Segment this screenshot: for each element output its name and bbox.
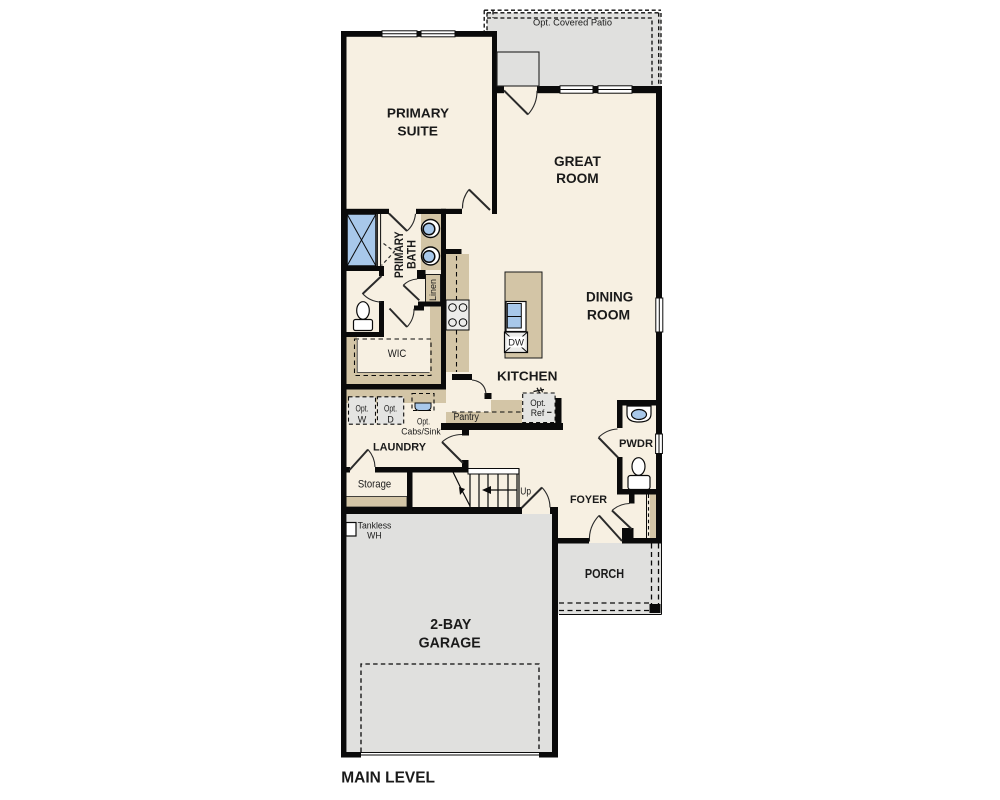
svg-text:GREAT: GREAT [554,154,602,169]
svg-text:W: W [358,414,367,424]
svg-text:PRIMARY: PRIMARY [387,106,450,121]
svg-text:ROOM: ROOM [587,307,630,322]
svg-text:2-BAY: 2-BAY [430,617,471,633]
svg-text:ROOM: ROOM [556,171,599,186]
svg-text:WH: WH [367,530,382,540]
svg-text:Opt.: Opt. [530,398,546,409]
svg-text:DINING: DINING [586,290,633,305]
svg-text:Opt.: Opt. [417,417,430,427]
svg-text:KITCHEN: KITCHEN [497,370,557,384]
svg-text:Storage: Storage [358,479,391,491]
svg-text:SUITE: SUITE [397,123,438,138]
svg-text:DW: DW [508,338,524,349]
svg-text:Up: Up [520,487,531,498]
svg-text:Cabs/Sink: Cabs/Sink [401,426,441,436]
svg-text:GARAGE: GARAGE [419,636,481,652]
svg-text:PORCH: PORCH [585,567,624,581]
svg-text:BATH: BATH [407,240,419,269]
svg-text:D: D [387,414,394,424]
svg-text:Pantry: Pantry [454,412,479,423]
svg-text:PWDR: PWDR [619,438,653,450]
svg-text:FOYER: FOYER [570,494,607,506]
svg-text:Opt.: Opt. [356,403,369,413]
svg-text:Opt. Covered Patio: Opt. Covered Patio [533,18,612,29]
svg-text:WIC: WIC [388,348,407,360]
svg-text:Opt.: Opt. [384,403,397,413]
svg-text:Ref: Ref [531,408,545,419]
svg-text:PRIMARY: PRIMARY [394,231,406,278]
svg-text:LAUNDRY: LAUNDRY [373,441,427,453]
svg-text:Linen: Linen [428,279,438,301]
svg-text:MAIN LEVEL: MAIN LEVEL [341,769,435,786]
svg-text:Tankless: Tankless [358,520,392,530]
